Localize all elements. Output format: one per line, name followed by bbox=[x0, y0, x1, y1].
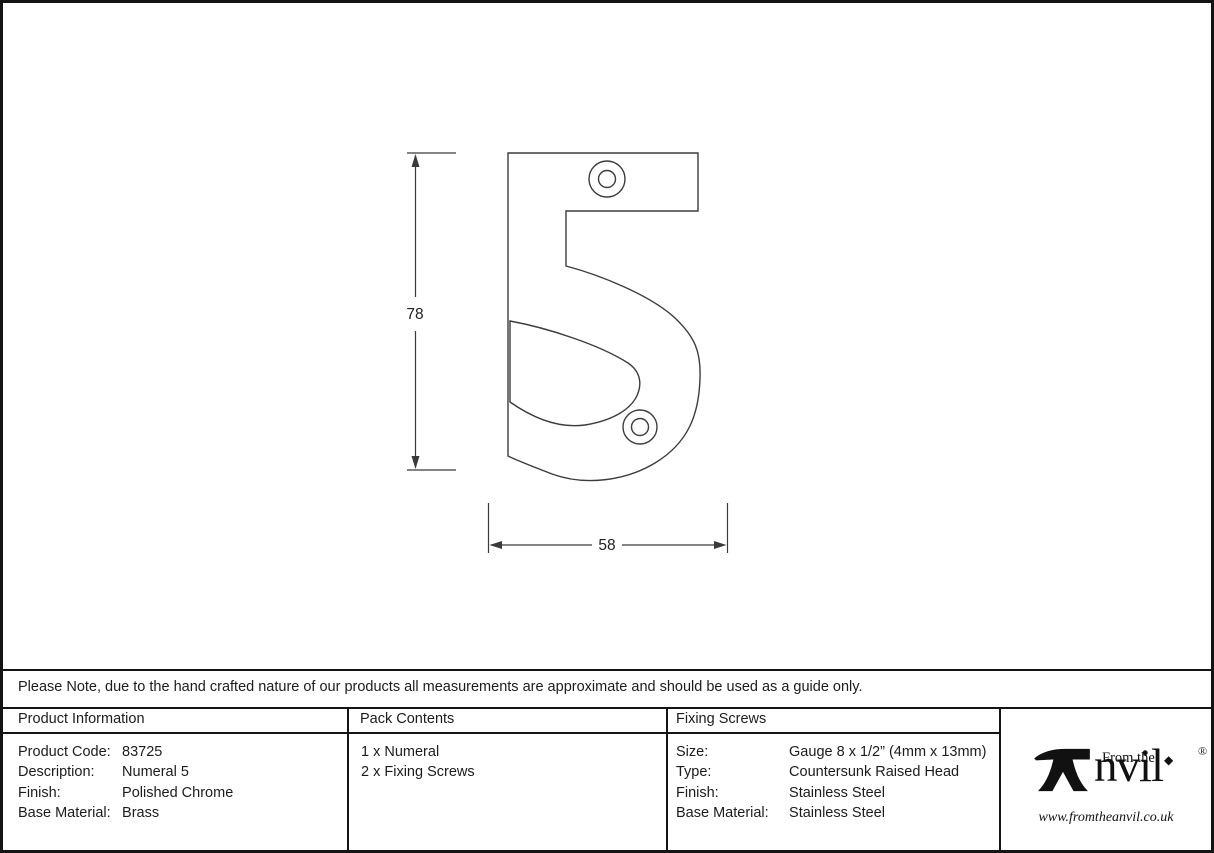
row-label: Product Code: bbox=[18, 742, 118, 762]
row-value: Numeral 5 bbox=[122, 764, 189, 780]
table-row: Base Material: Brass bbox=[18, 803, 233, 823]
column-divider-1 bbox=[347, 709, 349, 850]
screw-hole-top-outer bbox=[589, 161, 625, 197]
product-information-header: Product Information bbox=[18, 711, 145, 727]
technical-drawing: 78 58 bbox=[0, 0, 1214, 670]
table-row: Finish: Polished Chrome bbox=[18, 783, 233, 803]
table-row: Base Material: Stainless Steel bbox=[676, 803, 986, 823]
table-row: Description: Numeral 5 bbox=[18, 762, 233, 782]
row-value: Stainless Steel bbox=[789, 805, 885, 821]
width-dim-arrow-left bbox=[490, 541, 503, 549]
numeral-outline bbox=[508, 153, 700, 481]
anvil-icon bbox=[1031, 746, 1093, 794]
diamond-i-dot-icon: ◆ bbox=[1164, 753, 1173, 767]
row-label: Description: bbox=[18, 762, 118, 782]
list-item: 2 x Fixing Screws bbox=[361, 762, 475, 782]
list-item: 1 x Numeral bbox=[361, 742, 475, 762]
pack-contents-rows: 1 x Numeral 2 x Fixing Screws bbox=[361, 742, 475, 783]
row-label: Finish: bbox=[18, 783, 118, 803]
measurement-disclaimer-note: Please Note, due to the hand crafted nat… bbox=[18, 679, 862, 695]
height-dim-arrow-top bbox=[412, 154, 420, 167]
row-value: Countersunk Raised Head bbox=[789, 764, 959, 780]
screw-hole-bottom-outer bbox=[623, 410, 657, 444]
row-value: Brass bbox=[122, 805, 159, 821]
fixing-screws-header: Fixing Screws bbox=[676, 711, 766, 727]
screw-hole-top-inner bbox=[599, 171, 616, 188]
row-label: Size: bbox=[676, 742, 785, 762]
table-header-rule bbox=[3, 732, 1000, 734]
row-label: Base Material: bbox=[676, 803, 785, 823]
note-strip-top-rule bbox=[3, 669, 1211, 671]
row-value: 83725 bbox=[122, 744, 162, 760]
product-information-rows: Product Code: 83725 Description: Numeral… bbox=[18, 742, 233, 824]
table-row: Type: Countersunk Raised Head bbox=[676, 762, 986, 782]
product-spec-sheet: 78 58 Please Note, due to the hand craft… bbox=[0, 0, 1214, 853]
row-label: Finish: bbox=[676, 783, 785, 803]
registered-trademark-icon: ® bbox=[1198, 744, 1207, 759]
numeral-counter bbox=[510, 321, 640, 426]
height-dim-arrow-bottom bbox=[412, 456, 420, 469]
width-dim-label: 58 bbox=[598, 537, 615, 554]
table-row: Product Code: 83725 bbox=[18, 742, 233, 762]
logo-website-text: www.fromtheanvil.co.uk bbox=[1001, 810, 1211, 826]
width-dim-arrow-right bbox=[714, 541, 727, 549]
table-row: Finish: Stainless Steel bbox=[676, 783, 986, 803]
brand-logo: From the nvil ◆ ® www.fromtheanvil.co.uk bbox=[1001, 709, 1211, 850]
row-value: Stainless Steel bbox=[789, 785, 885, 801]
screw-hole-bottom-inner bbox=[632, 419, 649, 436]
fixing-screws-rows: Size: Gauge 8 x 1/2” (4mm x 13mm) Type: … bbox=[676, 742, 986, 824]
row-label: Type: bbox=[676, 762, 785, 782]
row-label: Base Material: bbox=[18, 803, 118, 823]
height-dim-label: 78 bbox=[406, 306, 423, 323]
pack-contents-header: Pack Contents bbox=[360, 711, 454, 727]
row-value: Polished Chrome bbox=[122, 785, 233, 801]
table-row: Size: Gauge 8 x 1/2” (4mm x 13mm) bbox=[676, 742, 986, 762]
logo-brand-text: nvil bbox=[1094, 742, 1163, 791]
column-divider-2 bbox=[666, 709, 668, 850]
row-value: Gauge 8 x 1/2” (4mm x 13mm) bbox=[789, 744, 986, 760]
